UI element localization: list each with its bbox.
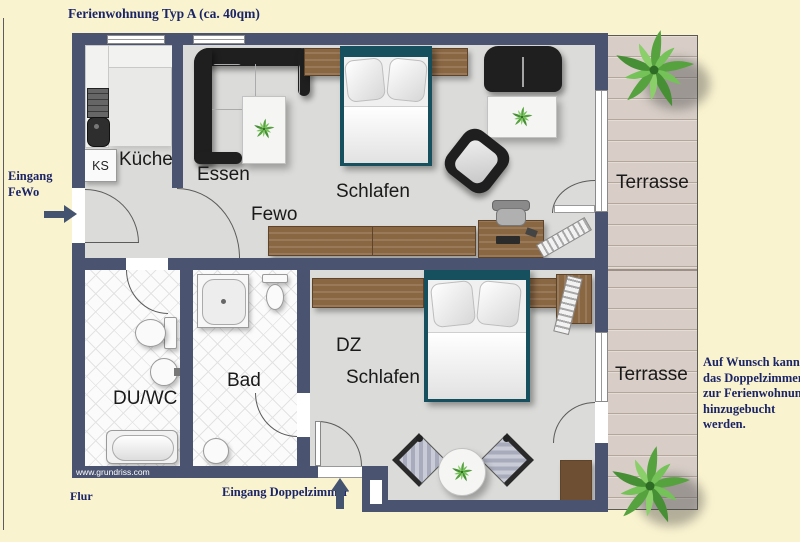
patio-chair-knob-left [416, 435, 423, 442]
office-chair-seat [496, 208, 526, 226]
wall-divider-right [168, 258, 608, 270]
room-label-fewo: Fewo [251, 204, 297, 226]
corner-sofa-seat-vertical [212, 64, 242, 154]
two-seat-sofa [484, 46, 562, 92]
toilet-duwc-bowl [135, 319, 166, 347]
wall-duwc-bad [180, 270, 193, 466]
entrance-fewo-arrow-head-icon [64, 205, 77, 223]
room-label-dz-schlafen: Schlafen [346, 367, 420, 389]
room-label-duwc: DU/WC [113, 388, 177, 410]
kitchen-worktop [109, 60, 171, 146]
sideboard-fewo [268, 226, 476, 256]
window-essen [193, 35, 245, 44]
sideboard-divider [372, 227, 373, 255]
wall-bad-dz-lower [297, 437, 310, 466]
bed-fewo-blanket [344, 106, 428, 163]
flur-text: Flur [70, 489, 93, 504]
wall-left-lower [72, 243, 85, 478]
watermark: www.grundriss.com [76, 467, 150, 477]
room-label-essen: Essen [197, 164, 250, 186]
note-line1: Auf Wunsch kann [703, 355, 800, 371]
entrance-dz-arrow-head-icon [331, 478, 349, 491]
entrance-fewo-line1: Eingang [8, 168, 52, 184]
toilet-bad-bowl [266, 284, 284, 310]
door-leaf-dz-entry [315, 421, 321, 466]
note-line3: zur Ferienwohnung [703, 386, 800, 402]
entrance-fewo-arrow-icon [44, 211, 64, 218]
wall-divider-left [72, 258, 126, 270]
wall-niche-dz [370, 480, 382, 504]
note-line2: das Doppelzimmer [703, 371, 800, 387]
bed-fewo-pillow-right [386, 57, 428, 103]
wall-right-b [595, 212, 608, 332]
wall-bottom-right [386, 500, 608, 512]
bed-dz [424, 268, 530, 402]
bed-dz-pillow-left [430, 280, 476, 328]
wall-kueche-essen [172, 33, 183, 188]
entrance-dz-text: Eingang Doppelzimmer [222, 485, 349, 500]
sink-drain-icon [94, 124, 99, 129]
note-line4: hinzugebucht [703, 402, 800, 418]
page-border-line [3, 18, 4, 530]
shower-drain-icon [221, 299, 226, 304]
desk-keyboard-icon [496, 236, 520, 244]
window-dz [595, 332, 608, 402]
door-opening-duwc [126, 258, 168, 270]
bed-dz-blanket [428, 332, 526, 399]
doormat-dz [560, 460, 592, 502]
nightstand-left [304, 48, 342, 76]
ks-label: KS [92, 159, 109, 173]
room-label-dz: DZ [336, 335, 361, 357]
terrace-divider-line [602, 269, 697, 271]
entrance-fewo-text: Eingang FeWo [8, 168, 52, 200]
note-line5: werden. [703, 417, 800, 433]
round-table-plant-icon [449, 459, 475, 485]
wall-bad-dz-upper [297, 270, 310, 393]
bed-dz-pillow-right [476, 280, 522, 328]
kitchen-sink-icon [87, 117, 110, 147]
room-label-schlafen: Schlafen [336, 181, 410, 203]
patio-chair-knob-right [503, 435, 510, 442]
armchair-seat [452, 137, 501, 186]
bathtub [106, 430, 178, 464]
bathtub-inner [112, 435, 174, 461]
stove-icon [87, 88, 109, 118]
nightstand-right [430, 48, 468, 76]
floorplan-page: Ferienwohnung Typ A (ca. 40qm) KS [0, 0, 800, 542]
corner-sofa-back-left [194, 48, 212, 164]
two-seat-sofa-cushions [493, 57, 553, 87]
page-title: Ferienwohnung Typ A (ca. 40qm) [68, 6, 260, 22]
wall-left-upper [72, 33, 85, 188]
shower [197, 274, 249, 328]
toilet-bad-tank [262, 274, 288, 283]
coffee-table-plant-icon [509, 104, 535, 130]
booking-note-text: Auf Wunsch kann das Doppelzimmer zur Fer… [703, 355, 800, 433]
washbasin-bad [203, 438, 229, 464]
entrance-fewo-line2: FeWo [8, 184, 52, 200]
table-plant-icon [251, 116, 277, 142]
sideboard-dz-left [312, 278, 424, 308]
entrance-dz-arrow-icon [336, 491, 344, 509]
door-opening-bad [297, 393, 310, 437]
room-label-terrasse-bottom: Terrasse [615, 364, 688, 386]
room-label-terrasse-top: Terrasse [616, 172, 689, 194]
fridge-ks-box: KS [84, 149, 117, 182]
terrace-plant-top-icon [604, 20, 704, 120]
door-leaf-fewo-entry [85, 242, 139, 243]
door-leaf-fewo-terrace [554, 205, 595, 213]
terrace-plant-bottom-icon [600, 436, 700, 536]
room-label-kueche: Küche [119, 149, 173, 171]
bed-fewo [340, 46, 432, 166]
door-opening-dz-entry [318, 466, 362, 478]
window-kueche [107, 35, 165, 44]
room-label-bad: Bad [227, 370, 261, 392]
bed-fewo-pillow-left [344, 57, 386, 103]
